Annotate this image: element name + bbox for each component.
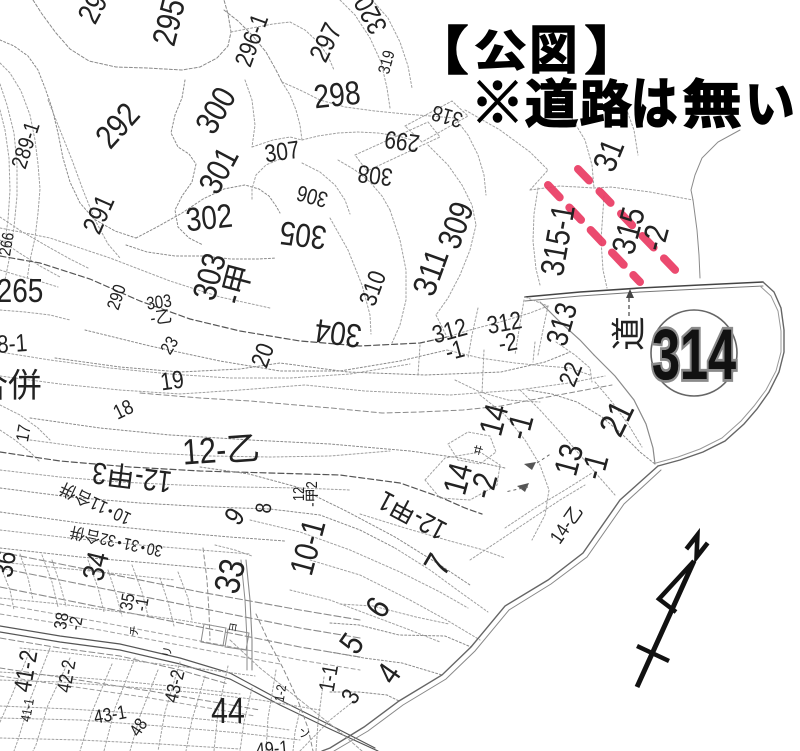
svg-text:2: 2 [304, 481, 321, 488]
svg-text:298: 298 [312, 75, 362, 117]
svg-text:305: 305 [278, 213, 329, 255]
svg-text:1-2: 1-2 [271, 683, 290, 703]
svg-text:49-1: 49-1 [255, 737, 289, 751]
svg-text:-: - [304, 503, 321, 507]
svg-text:304: 304 [313, 311, 364, 354]
svg-text:302: 302 [184, 198, 234, 240]
svg-text:308: 308 [356, 159, 394, 191]
svg-text:1-1: 1-1 [314, 663, 343, 694]
svg-text:307: 307 [263, 136, 302, 169]
svg-text:17: 17 [12, 423, 35, 443]
svg-text:44: 44 [211, 690, 245, 731]
svg-text:1: 1 [291, 494, 308, 501]
svg-text:8-1: 8-1 [0, 329, 28, 359]
svg-text:8: 8 [251, 502, 277, 515]
svg-text:299: 299 [383, 125, 422, 158]
svg-text:314: 314 [652, 315, 736, 395]
svg-text:265: 265 [0, 273, 43, 310]
svg-text:19: 19 [159, 365, 186, 396]
